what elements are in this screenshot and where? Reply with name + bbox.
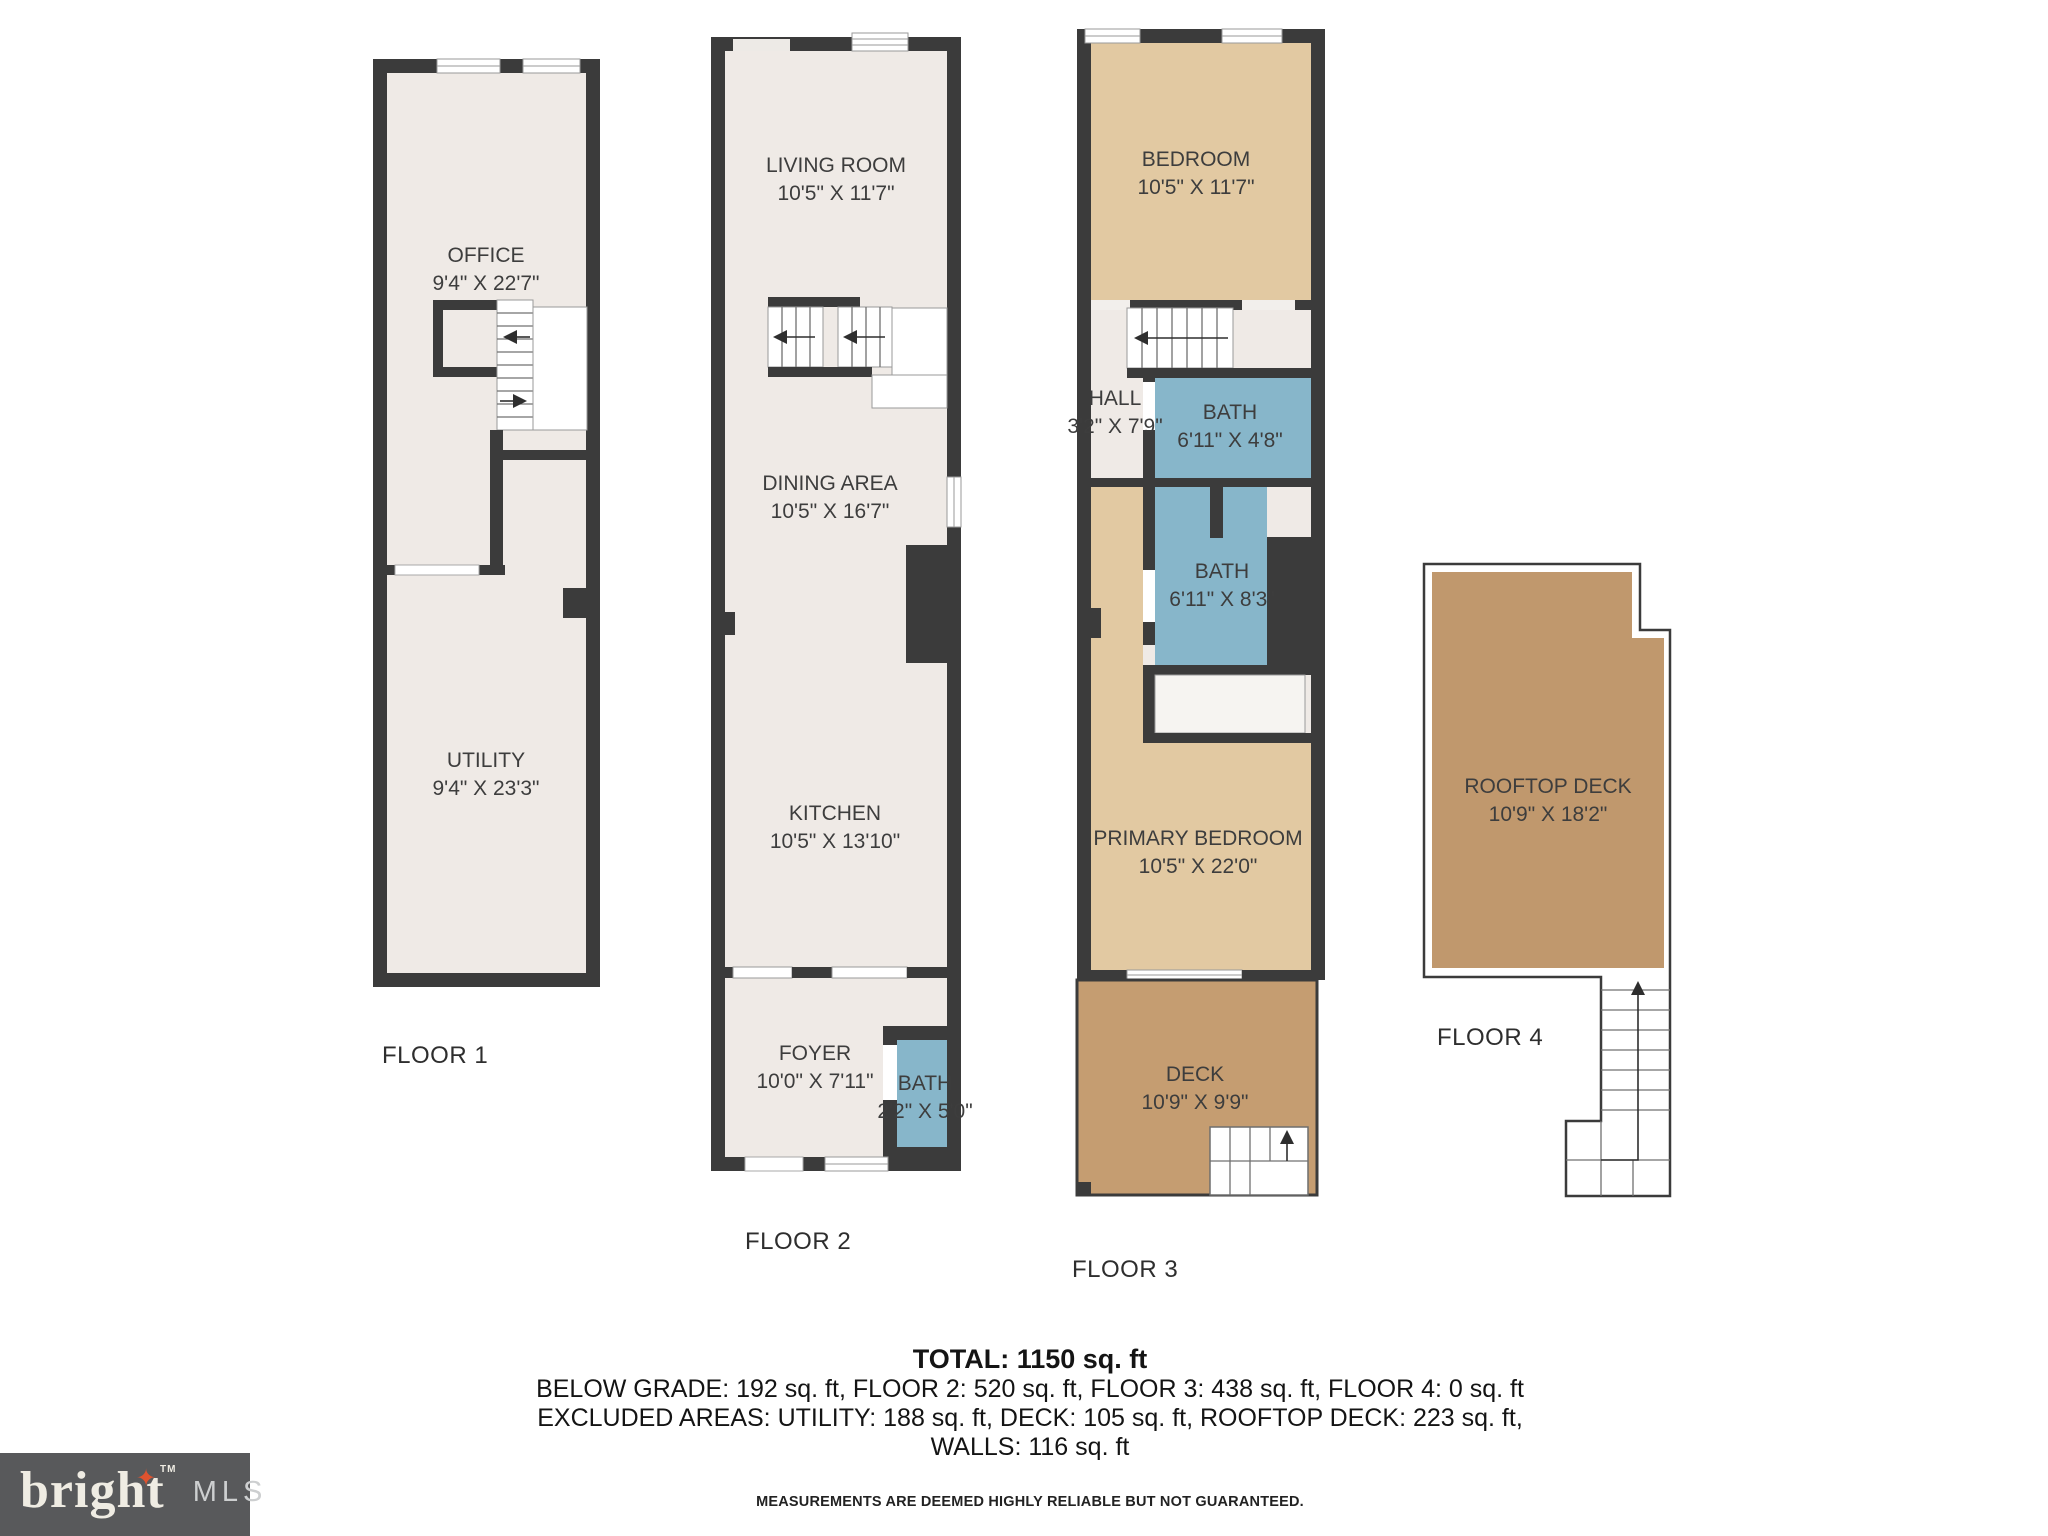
disclaimer-text: MEASUREMENTS ARE DEEMED HIGHLY RELIABLE … [0, 1494, 2048, 1510]
room-label-bedroom: BEDROOM 10'5" X 11'7" [1137, 146, 1254, 202]
total-area-text: TOTAL: 1150 sq. ft [0, 1344, 2048, 1375]
room-label-utility: UTILITY 9'4" X 23'3" [433, 747, 540, 803]
floor2-stairwell-void [872, 375, 947, 408]
room-label-rooftop-deck: ROOFTOP DECK 10'9" X 18'2" [1464, 773, 1631, 829]
floor2-entry-opening [733, 39, 790, 51]
floor-breakdown-text: BELOW GRADE: 192 sq. ft, FLOOR 2: 520 sq… [0, 1375, 2048, 1404]
logo-brand-text: bright ✦ TM [20, 1462, 179, 1519]
floor3-doorway [1242, 300, 1295, 310]
room-label-bath-lower: BATH 6'11" X 8'3" [1169, 558, 1274, 614]
floorplan-canvas: OFFICE 9'4" X 22'7" UTILITY 9'4" X 23'3"… [0, 0, 2048, 1536]
walls-area-text: WALLS: 116 sq. ft [0, 1433, 2048, 1462]
bright-mls-logo: bright ✦ TM MLS [0, 1453, 250, 1536]
floor3-closet-area [1155, 675, 1305, 733]
room-label-kitchen: KITCHEN 10'5" X 13'10" [770, 800, 900, 856]
trademark-text: TM [160, 1464, 176, 1475]
room-label-bath-upper: BATH 6'11" X 4'8" [1177, 399, 1282, 455]
floor1-window [437, 59, 500, 73]
floor2-entry-door [745, 1157, 803, 1171]
room-label-office: OFFICE 9'4" X 22'7" [433, 242, 540, 298]
floor3-deck-stairs [1210, 1127, 1308, 1195]
floor3-bath-door [1143, 570, 1155, 622]
floor3-doorway [1091, 300, 1130, 310]
floor2-wall-bump [711, 612, 735, 635]
excluded-areas-text: EXCLUDED AREAS: UTILITY: 188 sq. ft, DEC… [0, 1404, 2048, 1433]
room-label-hall: HALL 3'2" X 7'9" [1067, 385, 1162, 441]
floor4-plan [1415, 555, 1685, 1205]
floor2-pass-through [832, 967, 907, 978]
floor4-label: FLOOR 4 [1437, 1024, 1543, 1052]
floor1-plan [365, 50, 610, 995]
floor3-label: FLOOR 3 [1072, 1256, 1178, 1284]
floor2-window [852, 33, 908, 51]
floor2-counter-opening [733, 967, 792, 978]
area-summary: TOTAL: 1150 sq. ft BELOW GRADE: 192 sq. … [0, 1344, 2048, 1510]
floor1-wall-bump [563, 588, 600, 618]
logo-mls-text: MLS [193, 1476, 268, 1508]
floor3-window [1085, 29, 1140, 43]
floor2-window [947, 477, 961, 527]
floor2-window [825, 1157, 888, 1171]
floor3-partition-stub [1210, 487, 1223, 538]
floor3-wall-bump [1091, 608, 1101, 638]
room-label-primary-bedroom: PRIMARY BEDROOM 10'5" X 22'0" [1093, 825, 1302, 881]
floor1-floor-area [387, 73, 586, 973]
room-label-bath-floor2: BATH 2'2" X 5'0" [877, 1070, 972, 1126]
floor2-label: FLOOR 2 [745, 1228, 851, 1256]
room-label-foyer: FOYER 10'0" X 7'11" [756, 1040, 873, 1096]
room-label-deck: DECK 10'9" X 9'9" [1142, 1061, 1249, 1117]
floor1-stairwell-void [533, 307, 587, 430]
floor3-corner-post [1077, 1182, 1091, 1195]
floor2-kitchen-foyer-divider [725, 967, 947, 978]
floor1-label: FLOOR 1 [382, 1042, 488, 1070]
floor3-closet [1143, 675, 1311, 743]
room-label-dining-area: DINING AREA 10'5" X 16'7" [762, 470, 897, 526]
room-label-living-room: LIVING ROOM 10'5" X 11'7" [766, 152, 906, 208]
sparkle-icon: ✦ [136, 1464, 157, 1492]
floor1-window [523, 59, 580, 73]
floor4-stairs [1566, 981, 1670, 1196]
floor1-door-opening [395, 565, 479, 575]
floor4-rooftop-deck-area [1432, 572, 1664, 968]
floor3-window [1222, 29, 1282, 43]
floor2-fireplace [906, 545, 947, 663]
